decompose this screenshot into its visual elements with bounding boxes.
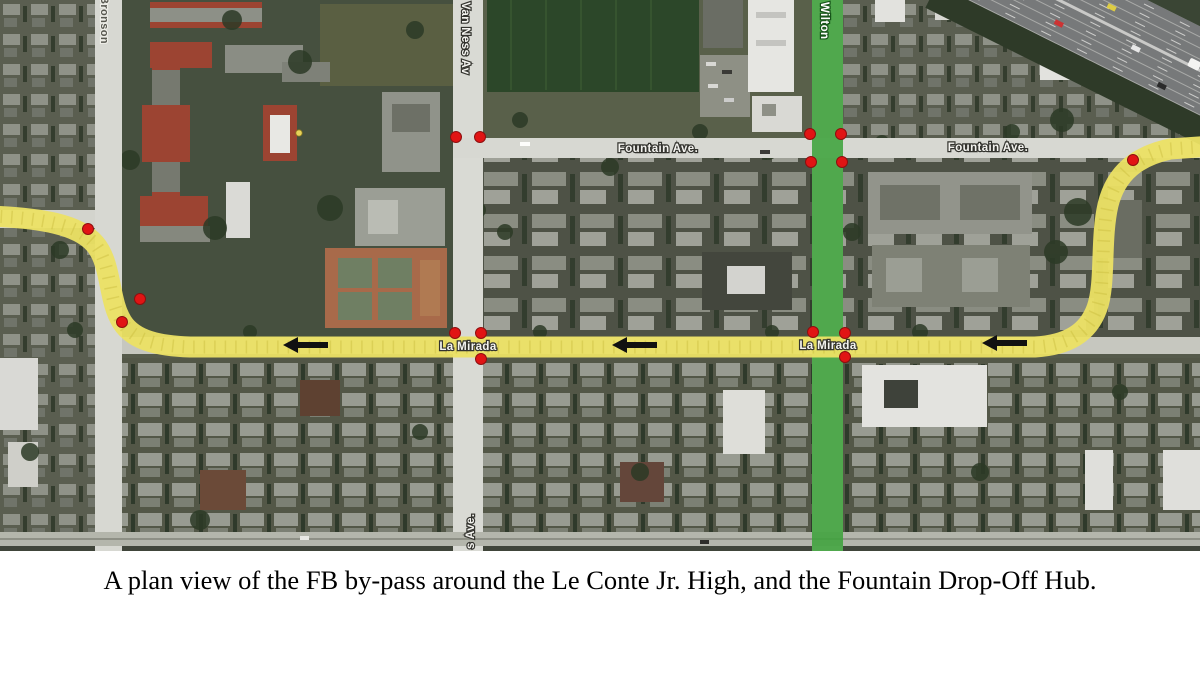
poi-marker [296, 130, 302, 136]
figure-page: Fountain Ave. Fountain Ave. La Mirada La… [0, 0, 1200, 674]
van-ness-label: Van Ness Av [459, 2, 471, 75]
hub-building [862, 365, 987, 427]
figure-caption: A plan view of the FB by-pass around the… [0, 565, 1200, 596]
la-mirada-label-2: La Mirada [799, 340, 856, 352]
fountain-ave-label-1: Fountain Ave. [618, 143, 698, 155]
bronson-label: Bronson [98, 0, 110, 44]
wilton-label: Wilton [818, 2, 830, 39]
school-field-block [483, 0, 813, 138]
la-mirada-label-1: La Mirada [439, 341, 496, 353]
school-campus [122, 0, 453, 338]
van-ness-street [453, 0, 483, 551]
sports-field [487, 0, 699, 92]
fountain-ave-label-2: Fountain Ave. [948, 142, 1028, 154]
van-ness-label-fragment: s Ave. [465, 514, 477, 549]
wilton-highlight [812, 0, 843, 551]
satellite-map: Fountain Ave. Fountain Ave. La Mirada La… [0, 0, 1200, 551]
